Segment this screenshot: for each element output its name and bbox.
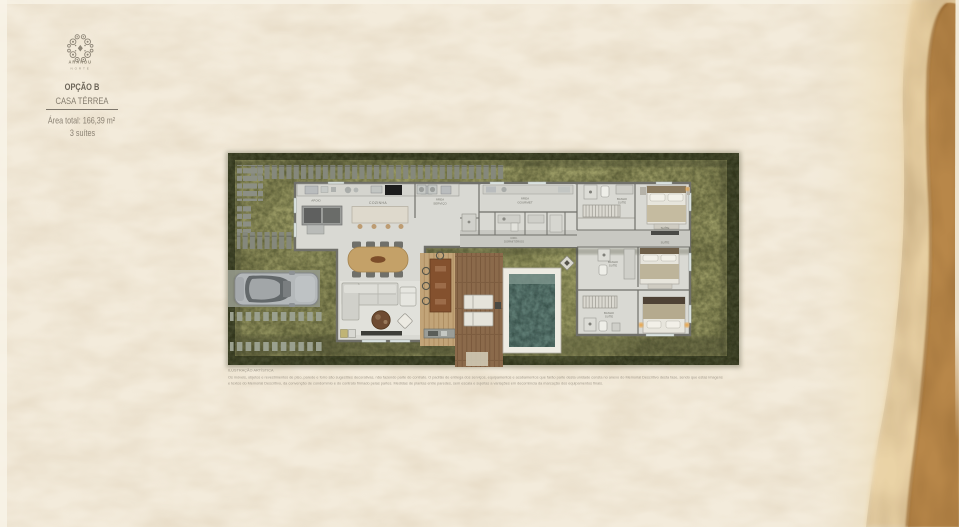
svg-text:SUÍTE: SUÍTE [661, 241, 670, 245]
svg-text:e textos do Memorial Descritiv: e textos do Memorial Descritivo, da conv… [228, 381, 603, 385]
svg-text:CASA TÉRREA: CASA TÉRREA [56, 95, 109, 106]
svg-text:SUÍTE: SUÍTE [618, 201, 626, 205]
svg-text:ILUSTRAÇÃO ARTÍSTICA: ILUSTRAÇÃO ARTÍSTICA [228, 367, 274, 372]
svg-text:Área total: 166,39 m²: Área total: 166,39 m² [48, 116, 116, 126]
svg-text:DORMITÓRIOS: DORMITÓRIOS [504, 239, 524, 244]
svg-text:COZINHA: COZINHA [369, 201, 387, 205]
svg-text:Os móveis, objetos e revestime: Os móveis, objetos e revestimentos de pi… [228, 375, 723, 379]
svg-text:3 suítes: 3 suítes [70, 128, 95, 138]
svg-text:ARANDU: ARANDU [69, 59, 93, 64]
svg-text:SUÍTE: SUÍTE [609, 264, 617, 268]
svg-text:SERVIÇO: SERVIÇO [433, 202, 447, 206]
svg-text:SUÍTE: SUÍTE [605, 315, 613, 319]
svg-text:SUÍTE: SUÍTE [661, 226, 670, 230]
svg-text:NORTE: NORTE [70, 66, 90, 70]
svg-text:OPÇÃO B: OPÇÃO B [65, 81, 100, 92]
svg-text:APOIO: APOIO [311, 199, 321, 203]
svg-text:GOURMET: GOURMET [517, 201, 533, 205]
